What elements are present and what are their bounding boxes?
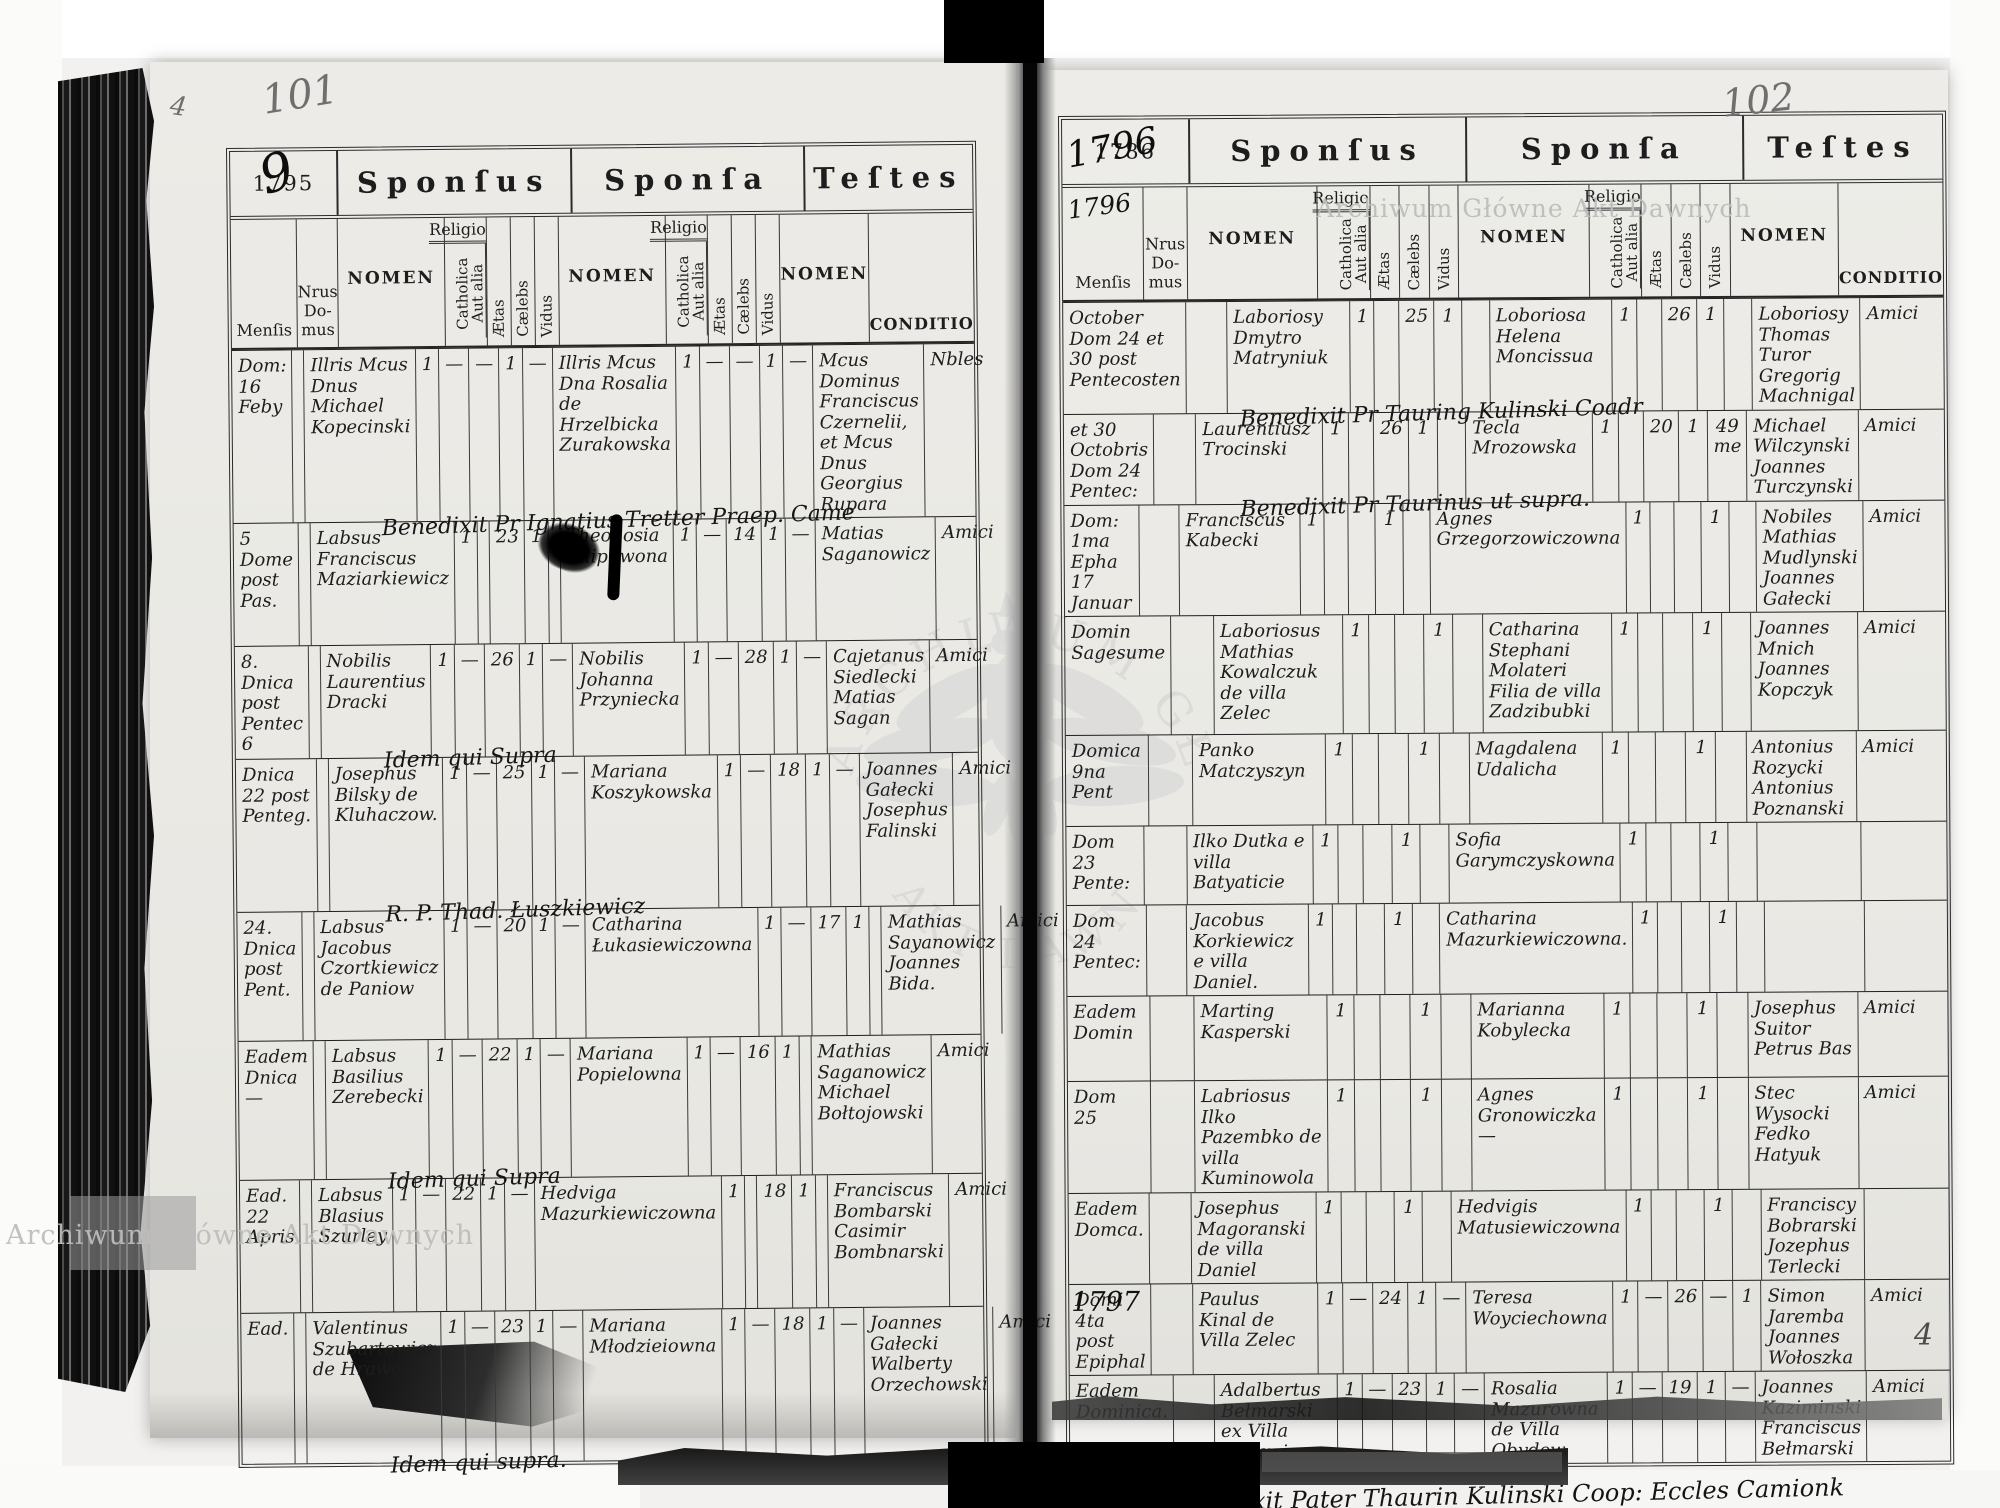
sponsus-nomen-cell: Paulus Kinal de Villa Zelec bbox=[1192, 1284, 1318, 1375]
row-mensis-cell: Dom: 16 Feby bbox=[232, 350, 293, 523]
sponsa-vidus-mark bbox=[1721, 613, 1751, 731]
sponsa-vidus-mark bbox=[1732, 1190, 1761, 1280]
sponsus-catholica-mark: 1 bbox=[1325, 735, 1352, 825]
column-aetas-label: Ætas bbox=[713, 298, 728, 336]
sponsus-vidus-mark: — bbox=[522, 348, 554, 520]
sponsus-nomen-cell: Laboriosy Dmytro Matryniuk bbox=[1226, 301, 1350, 412]
table-row: Ead.Valentinus Szubartowicz de Hrawa1—23… bbox=[241, 1306, 984, 1464]
sponsa-vidus-mark bbox=[1736, 902, 1764, 992]
sponsus-aetas-mark: 23 bbox=[494, 1311, 530, 1461]
row-mensis-cell: October Dom 24 et 30 post Pentecosten bbox=[1063, 302, 1186, 413]
sponsa-caelebs-mark: 1 bbox=[1692, 613, 1722, 731]
row-mensis-cell: Eadem Domca. bbox=[1069, 1193, 1149, 1284]
sponsus-aetas-mark: 25 bbox=[1398, 301, 1434, 412]
sponsa-catholica-mark: 1 bbox=[757, 908, 782, 1036]
sponsus-aut-alia-mark: — bbox=[454, 645, 485, 757]
row-nrus-cell bbox=[1150, 1284, 1192, 1374]
sponsus-caelebs-mark: 1 bbox=[498, 348, 523, 520]
sponsus-caelebs-mark: 1 bbox=[1384, 904, 1412, 994]
sponsa-aut-alia-mark bbox=[1628, 733, 1655, 823]
testes-nomen-cell: Loboriosy Thomas Turor Gregorig Machniga… bbox=[1751, 298, 1860, 409]
table-row: Domi 4ta post EpiphalPaulus Kinal de Vil… bbox=[1069, 1279, 1950, 1375]
sponsa-aetas-mark: 20 bbox=[1643, 411, 1678, 501]
testes-nomen-cell: Michael Wilczynski Joannes Turczynski bbox=[1746, 410, 1858, 501]
testes-nomen-cell: Mathias Sayanowicz Joannes Bida. bbox=[881, 906, 1001, 1035]
corner-mark-right: 4 bbox=[1914, 1318, 1933, 1353]
sponsa-aut-alia-mark: — bbox=[780, 908, 811, 1036]
sponsus-catholica-mark: 1 bbox=[453, 522, 478, 644]
sponsa-aetas-mark: 18 bbox=[756, 1176, 792, 1308]
sponsa-catholica-mark: 1 bbox=[1611, 614, 1638, 732]
sponsa-nomen-cell: Catharina Łukasiewiczowna bbox=[585, 908, 758, 1038]
sponsa-catholica-mark: 1 bbox=[717, 755, 742, 907]
section-header-sponsus: Sponſus bbox=[336, 149, 570, 215]
book-spine bbox=[1023, 58, 1037, 1508]
sponsa-aut-alia-mark bbox=[1636, 299, 1661, 410]
table-row: Dom: 1ma Epha 17 JanuarFranciscus Kabeck… bbox=[1064, 499, 1945, 616]
column-caelebs-label: Cælebs bbox=[1678, 232, 1693, 289]
sponsa-caelebs-mark: 1 bbox=[845, 907, 870, 1035]
sponsa-aetas-mark: 14 bbox=[726, 519, 762, 641]
scanner-background-left bbox=[0, 0, 62, 1508]
sponsus-vidus-mark: — bbox=[503, 1178, 534, 1310]
row-mensis-cell: 24. Dnica post Pent. bbox=[237, 912, 302, 1041]
sponsa-catholica-mark: 1 bbox=[673, 520, 698, 642]
sponsus-aetas-mark: 26 bbox=[484, 644, 520, 756]
sponsus-caelebs-mark: 1 bbox=[1410, 1080, 1441, 1191]
margin-year-note: 1797 bbox=[1071, 1287, 1140, 1318]
sponsus-nomen-cell: Valentinus Szubartowicz de Hrawa bbox=[305, 1312, 441, 1463]
sponsa-caelebs-mark: 1 bbox=[1696, 299, 1725, 410]
sponsus-aut-alia-mark bbox=[1368, 615, 1395, 733]
sponsus-catholica-mark: 1 bbox=[1299, 504, 1324, 615]
bottom-clip bbox=[948, 1442, 1260, 1508]
sponsus-vidus-mark: — bbox=[1435, 1283, 1466, 1373]
table-row: October Dom 24 et 30 post PentecostenLab… bbox=[1063, 297, 1944, 414]
sponsa-aut-alia-mark bbox=[1617, 411, 1643, 501]
sponsus-nomen-cell: Marting Kasperski bbox=[1193, 996, 1327, 1081]
sponsus-caelebs-mark: 1 bbox=[531, 910, 556, 1038]
sponsus-nomen-cell: Laboriosus Mathias Kowalczuk de villa Ze… bbox=[1213, 616, 1343, 735]
row-mensis-cell: Dom: 1ma Epha 17 Januar bbox=[1064, 505, 1139, 616]
sponsa-nomen-cell: Teresa Woyciechowna bbox=[1465, 1282, 1613, 1373]
marriage-register-table-right: 17861796SponſusSponſaTeſtesMenſis1796Nru… bbox=[1058, 111, 1954, 1471]
row-mensis-cell: Domica 9na Pent bbox=[1066, 736, 1148, 827]
sponsus-nomen-cell: Franciscus Kabecki bbox=[1179, 504, 1300, 615]
table-row: Dom 23 Pente:Ilko Dutka e villa Batyatic… bbox=[1066, 821, 1946, 905]
table-row: Domin SagesumeLaboriosus Mathias Kowalcz… bbox=[1065, 611, 1946, 735]
sponsus-vidus-mark: — bbox=[540, 1039, 571, 1177]
sponsus-nomen-cell: Panko Matczyszyn bbox=[1192, 735, 1326, 826]
sponsa-caelebs-mark: 1 bbox=[1687, 993, 1718, 1077]
row-mensis-cell: 8. Dnica post Pentec 6 bbox=[235, 646, 309, 759]
column-conditio: CONDITIO bbox=[1837, 183, 1943, 296]
sponsus-aetas-mark bbox=[1356, 904, 1384, 994]
register-book-scan: ARCHIWUM GŁÓWNE AKT DAWNYCH 17959Sponſus… bbox=[0, 0, 2000, 1508]
column-religio: Religio bbox=[429, 218, 486, 245]
year-cell: 17861796 bbox=[1062, 119, 1188, 184]
year-handwritten-below: 1796 bbox=[1066, 188, 1133, 225]
sponsa-aetas-mark bbox=[1675, 1190, 1704, 1280]
sponsus-caelebs-mark: 1 bbox=[480, 1179, 505, 1311]
sponsus-catholica-mark: 1 bbox=[1349, 301, 1374, 412]
sponsus-aetas-mark bbox=[1365, 1192, 1394, 1282]
testes-nomen-cell: Franciscy Bobrarski Jozephus Terlecki bbox=[1760, 1189, 1864, 1280]
column-aetas: Ætas bbox=[486, 217, 511, 345]
register-header-band: 17861796SponſusSponſaTeſtes bbox=[1062, 115, 1942, 188]
column-religio: Religio bbox=[650, 215, 707, 242]
sponsus-vidus-mark bbox=[1422, 1192, 1451, 1282]
sponsus-catholica-mark: 1 bbox=[440, 1312, 465, 1462]
sponsa-nomen-cell: Agnes Grzegorzowiczowna bbox=[1429, 502, 1625, 614]
column-vidus-label: Vidus bbox=[761, 292, 776, 334]
year-overlay-handwritten: 1796 bbox=[1063, 120, 1161, 177]
sponsus-vidus-mark bbox=[1436, 412, 1465, 502]
column-nrus-domus: Nrus Do-mus bbox=[1143, 187, 1187, 299]
conditio-cell bbox=[1864, 901, 1947, 992]
sponsa-vidus-mark: 1 bbox=[1732, 1281, 1761, 1371]
sponsus-vidus-mark bbox=[1402, 503, 1430, 614]
sponsa-vidus-mark: — bbox=[782, 345, 814, 517]
column-testes-nomen: NOMEN bbox=[779, 214, 869, 343]
sponsa-nomen-cell: Catharina Mazurkiewiczowna. bbox=[1439, 903, 1633, 994]
sponsus-caelebs-mark: 1 bbox=[1410, 995, 1441, 1079]
sponsus-vidus-mark: — bbox=[542, 644, 573, 756]
sponsa-nomen-cell: Nobilis Johanna Przyniecka bbox=[572, 643, 685, 756]
sponsus-aetas-mark: 23 bbox=[489, 521, 525, 643]
sponsus-catholica-mark: 1 bbox=[428, 1040, 453, 1178]
sponsa-vidus-mark bbox=[1717, 993, 1748, 1077]
row-mensis-cell: Dnica 22 post Penteg. bbox=[236, 759, 317, 912]
sponsus-catholica-mark: 1 bbox=[1315, 1192, 1341, 1282]
sponsa-vidus-mark: — bbox=[796, 641, 827, 753]
year-cell: 17959 bbox=[230, 151, 337, 216]
conditio-cell: Amici bbox=[1862, 500, 1945, 611]
sponsus-aetas-mark: — bbox=[468, 348, 500, 520]
sponsus-catholica-mark: 1 bbox=[1317, 1283, 1343, 1373]
sponsus-caelebs-mark: 1 bbox=[530, 757, 555, 909]
sponsa-aetas-mark bbox=[1656, 994, 1687, 1078]
sponsus-caelebs-mark: 1 bbox=[1391, 825, 1420, 903]
row-mensis-cell: Eadem Domin bbox=[1067, 997, 1149, 1081]
column-caelebs: Cælebs bbox=[510, 217, 535, 345]
sponsus-aut-alia-mark bbox=[1323, 504, 1348, 615]
sponsa-aetas-mark: 28 bbox=[738, 642, 774, 754]
sponsus-aetas-mark bbox=[1347, 504, 1375, 615]
row-nrus-cell bbox=[1148, 1193, 1190, 1283]
sponsa-aut-alia-mark bbox=[1656, 903, 1681, 993]
section-header-testes: Teſtes bbox=[1742, 115, 1943, 180]
bottom-dark-edge-secondary bbox=[1262, 1452, 1562, 1472]
column-vidus-2: Vidus bbox=[755, 215, 780, 343]
conditio-cell: Amici bbox=[1857, 992, 1948, 1077]
sponsus-aetas-mark bbox=[1378, 734, 1409, 824]
sponsus-caelebs-mark: 1 bbox=[529, 1311, 554, 1461]
sponsa-aut-alia-mark: — bbox=[744, 1309, 775, 1459]
sponsus-aut-alia-mark: — bbox=[451, 1040, 482, 1178]
sponsa-aut-alia-mark: — bbox=[710, 1037, 741, 1175]
sponsa-aut-alia-mark bbox=[1650, 1190, 1676, 1280]
sponsa-nomen-cell: Hedvigis Matusiewiczowna bbox=[1450, 1191, 1625, 1282]
column-conditio: CONDITIO bbox=[868, 213, 974, 342]
sponsa-aetas-mark bbox=[1673, 502, 1701, 613]
sponsa-nomen-cell: Illris Mcus Dna Rosalia de Hrzelbicka Zu… bbox=[552, 347, 677, 520]
table-row: Dom 24 Pentec:Jacobus Korkiewicz e villa… bbox=[1067, 900, 1948, 996]
column-aetas-label: Ætas bbox=[1377, 252, 1392, 290]
sponsa-aut-alia-mark: — bbox=[740, 755, 771, 907]
sponsus-vidus-mark bbox=[1440, 1080, 1471, 1191]
sponsus-vidus-mark: — bbox=[554, 757, 585, 909]
testes-nomen-cell bbox=[1756, 822, 1861, 901]
sponsus-vidus-mark bbox=[1440, 995, 1471, 1079]
sponsa-nomen-cell: Marianna Kobylecka bbox=[1470, 994, 1604, 1079]
sponsus-nomen-cell: Jacobus Korkiewicz e villa Daniel. bbox=[1186, 905, 1308, 996]
testes-nomen-cell: Stec Wysocki Fedko Hatyuk bbox=[1747, 1078, 1858, 1189]
testes-nomen-cell: Mathias Saganowicz Michael Bołtojowski bbox=[810, 1035, 932, 1174]
conditio-cell: Amici bbox=[935, 517, 1000, 640]
sponsus-vidus-mark bbox=[1411, 904, 1439, 994]
sponsus-aetas-mark: 25 bbox=[496, 757, 532, 909]
book-page-edges bbox=[58, 68, 154, 1392]
sponsus-catholica-mark: 1 bbox=[1312, 826, 1338, 904]
table-row: 24. Dnica post Pent.Labsus Jacobus Czort… bbox=[237, 905, 980, 1041]
row-mensis-cell: et 30 Octobris Dom 24 Pentec: bbox=[1064, 414, 1154, 505]
sponsa-catholica-mark: 1 bbox=[721, 1309, 746, 1459]
sponsa-caelebs-mark: 1 bbox=[1701, 502, 1729, 613]
sponsa-aetas-mark: — bbox=[728, 346, 760, 518]
table-row: Domica 9na PentPanko Matczyszyn11Magdale… bbox=[1066, 730, 1947, 826]
religio-column-group: ReligioCatholicaAut alia bbox=[664, 215, 708, 343]
section-header-testes: Teſtes bbox=[803, 145, 973, 211]
table-row: Eadem Domca.Josephus Magoranski de villa… bbox=[1069, 1188, 1950, 1284]
row-nrus-cell bbox=[1170, 616, 1214, 734]
register-header-band: 17959SponſusSponſaTeſtes bbox=[230, 145, 973, 220]
testes-nomen-cell: Simon Jaremba Joannes Wołoszka bbox=[1761, 1280, 1865, 1371]
row-nrus-cell bbox=[1147, 735, 1192, 825]
sponsus-catholica-mark: 1 bbox=[443, 911, 468, 1039]
sponsa-caelebs-mark: 1 bbox=[1708, 902, 1736, 992]
top-clip bbox=[944, 0, 1044, 63]
sponsus-caelebs-mark: 1 bbox=[1408, 734, 1439, 824]
sponsus-caelebs-mark: 1 bbox=[1423, 615, 1453, 733]
sponsa-nomen-cell: Hedviga Mazurkiewiczowna bbox=[533, 1176, 722, 1310]
table-row: 8. Dnica post Pentec 6Nobilis Laurentius… bbox=[235, 639, 978, 759]
row-mensis-cell: Dom 24 Pentec: bbox=[1067, 906, 1146, 997]
sponsus-nomen-cell: Labriosus Ilko Pazembko de villa Kuminow… bbox=[1194, 1081, 1328, 1192]
row-nrus-cell bbox=[1144, 827, 1187, 905]
sponsus-aut-alia-mark bbox=[1340, 1192, 1366, 1282]
sponsus-catholica-mark: 1 bbox=[430, 645, 455, 757]
scanner-background-right bbox=[1950, 0, 2000, 1508]
sponsus-catholica-mark: 1 bbox=[1342, 615, 1369, 733]
sponsa-caelebs-mark: 1 bbox=[761, 519, 786, 641]
archive-watermark-bottom-left: Archiwum Główne Akt Dawnych bbox=[6, 1220, 474, 1251]
sponsa-vidus-mark bbox=[1728, 501, 1756, 612]
sponsa-nomen-cell: Sofia Garymczyskowna bbox=[1448, 824, 1620, 903]
testes-nomen-cell: Joannes Gałecki Josephus Falinski bbox=[858, 753, 953, 906]
section-header-sponsus: Sponſus bbox=[1188, 118, 1465, 184]
row-nrus-cell bbox=[1185, 302, 1227, 413]
sponsa-catholica-mark: 1 bbox=[1603, 994, 1630, 1078]
sponsa-catholica-mark: 1 bbox=[1602, 733, 1629, 823]
sponsa-vidus-mark bbox=[1715, 732, 1746, 822]
sponsa-aut-alia-mark: — bbox=[696, 519, 727, 641]
sponsa-nomen-cell: Mariana Koszykowska bbox=[584, 755, 718, 908]
testes-nomen-cell: Joannes Gałecki Walberty Orzechowski bbox=[863, 1307, 994, 1458]
sponsus-aetas-mark bbox=[1394, 615, 1424, 733]
sponsus-aetas-mark bbox=[1363, 825, 1392, 903]
column-vidus-label: Vidus bbox=[1708, 246, 1723, 288]
sponsus-aut-alia-mark: — bbox=[466, 911, 497, 1039]
testes-nomen-cell: Franciscus Bombarski Casimir Bombnarski bbox=[827, 1174, 950, 1307]
sponsa-aetas-mark bbox=[1657, 1079, 1688, 1190]
sponsa-caelebs-mark: 1 bbox=[775, 1037, 800, 1175]
row-mensis-cell: Dom 25 bbox=[1068, 1082, 1150, 1193]
sponsus-caelebs-mark: 1 bbox=[1375, 504, 1403, 615]
sponsus-aut-alia-mark bbox=[1332, 905, 1357, 995]
conditio-cell: Amici bbox=[1857, 1077, 1948, 1188]
column-vidus-label: Vidus bbox=[1436, 247, 1451, 289]
sponsa-aut-alia-mark bbox=[1630, 994, 1657, 1078]
sponsa-aut-alia-mark bbox=[1637, 614, 1664, 732]
sponsa-catholica-mark: 1 bbox=[1612, 300, 1637, 411]
conditio-cell: Amici bbox=[948, 1174, 1013, 1307]
row-mensis-cell: Ead. bbox=[241, 1314, 295, 1464]
sponsa-caelebs-mark: 1 bbox=[1687, 1078, 1718, 1189]
sponsa-nomen-cell: Mariana Popielowna bbox=[570, 1038, 688, 1177]
sponsus-vidus-mark: — bbox=[555, 910, 586, 1038]
column-caelebs-label: Cælebs bbox=[515, 281, 531, 338]
testes-nomen-cell: Cajetanus Siedlecki Matias Sagan bbox=[826, 640, 930, 753]
sponsa-aut-alia-mark bbox=[1630, 1079, 1657, 1190]
column-aetas-2: Ætas bbox=[707, 215, 732, 343]
table-row: Dnica 22 post Penteg.Josephus Bilsky de … bbox=[236, 752, 979, 912]
sponsus-vidus-mark bbox=[1461, 300, 1490, 411]
conditio-cell: Amici bbox=[931, 1035, 996, 1174]
sponsus-aetas-mark: 20 bbox=[496, 910, 532, 1038]
sponsus-caelebs-mark: 1 bbox=[1394, 1192, 1423, 1282]
religio-column-group: ReligioCatholicaAut alia bbox=[443, 218, 487, 346]
conditio-cell: Nbles bbox=[923, 344, 990, 517]
sponsus-nomen-cell: Labsus Basilius Zerebecki bbox=[325, 1040, 430, 1179]
sponsa-catholica-mark: 1 bbox=[1620, 824, 1646, 902]
year-overlay-handwritten: 9 bbox=[252, 140, 301, 207]
testes-nomen-cell: Antonius Rozycki Antonius Poznanski bbox=[1745, 731, 1856, 822]
sponsus-catholica-mark: 1 bbox=[1327, 1081, 1354, 1192]
table-row: Dom: 16 FebyIllris Mcus Dnus Michael Kop… bbox=[232, 343, 976, 523]
archive-watermark-top-right: Archiwum Główne Akt Dawnych bbox=[1316, 194, 1752, 223]
marriage-register-table-left: 17959SponſusSponſaTeſtesMenſisNrus Do-mu… bbox=[226, 141, 989, 1468]
conditio-cell: Amici bbox=[1864, 1280, 1950, 1371]
column-aut-alia: Aut alia bbox=[470, 244, 487, 338]
sponsa-caelebs-mark: 1 bbox=[1685, 732, 1716, 822]
sponsa-catholica-mark: 1 bbox=[1604, 1079, 1631, 1190]
table-row: Dom 25Labriosus Ilko Pazembko de villa K… bbox=[1068, 1076, 1949, 1193]
sponsa-aut-alia-mark bbox=[1649, 502, 1674, 613]
sponsa-caelebs-mark: 1 bbox=[773, 642, 798, 754]
testes-nomen-cell: Joannes Mnich Joannes Kopczyk bbox=[1750, 612, 1858, 731]
conditio-cell bbox=[1860, 822, 1946, 901]
column-caelebs-2: Cælebs bbox=[731, 215, 756, 343]
row-mensis-cell: Dom 23 Pente: bbox=[1066, 827, 1144, 905]
sponsa-aut-alia-mark: — bbox=[698, 346, 730, 518]
sponsa-catholica-mark: 1 bbox=[1612, 1282, 1638, 1372]
table-row: Eadem Dnica —Labsus Basilius Zerebecki1—… bbox=[239, 1034, 982, 1180]
row-nrus-cell bbox=[1153, 414, 1196, 504]
row-nrus-cell bbox=[1149, 997, 1194, 1081]
section-header-sponsa: Sponſa bbox=[570, 146, 804, 212]
sponsus-aut-alia-mark: — bbox=[438, 349, 470, 521]
column-vidus: Vidus bbox=[534, 217, 559, 345]
sponsa-catholica-mark: 1 bbox=[675, 346, 700, 518]
row-nrus-cell bbox=[1145, 906, 1186, 996]
sponsa-nomen-cell: Loboriosa Helena Moncissua bbox=[1489, 300, 1613, 411]
sponsa-aut-alia-mark: — bbox=[708, 642, 739, 754]
column-mensis: Menſis bbox=[231, 219, 297, 348]
sponsa-catholica-mark: 1 bbox=[684, 643, 709, 755]
sponsa-aetas-mark: 26 bbox=[1667, 1281, 1702, 1371]
sponsus-vidus-mark bbox=[1420, 825, 1449, 903]
sponsus-nomen-cell: Labsus Jacobus Czortkiewicz de Paniow bbox=[313, 911, 444, 1040]
sponsa-caelebs-mark: 1 bbox=[758, 346, 783, 518]
testes-nomen-cell: Nobiles Mathias Mudlynski Joannes Gałeck… bbox=[1755, 501, 1863, 612]
column-aut-alia: Aut alia bbox=[1353, 212, 1369, 290]
sponsus-aut-alia-mark: — bbox=[464, 1312, 495, 1462]
conditio-cell: Amici bbox=[952, 753, 1017, 906]
sponsus-aut-alia-mark bbox=[1351, 734, 1378, 824]
sponsus-nomen-cell: Josephus Bilsky de Kluhaczow. bbox=[328, 758, 444, 911]
sponsa-aetas-mark bbox=[1655, 732, 1686, 822]
sponsa-aetas-mark bbox=[1681, 902, 1709, 992]
sponsus-aetas-mark: 24 bbox=[1372, 1283, 1407, 1373]
conditio-cell: Amici bbox=[1860, 298, 1944, 409]
sponsus-aetas-mark bbox=[1380, 995, 1411, 1079]
testes-nomen-cell bbox=[1764, 901, 1865, 992]
sponsa-caelebs-mark: 1 bbox=[1703, 1190, 1732, 1280]
sponsa-vidus-mark bbox=[1724, 299, 1753, 410]
sponsa-aetas-mark: 18 bbox=[774, 1309, 810, 1459]
sponsus-aut-alia-mark bbox=[1353, 995, 1380, 1079]
sponsus-caelebs-mark: 1 bbox=[519, 644, 544, 756]
sponsa-vidus-mark bbox=[1728, 823, 1757, 901]
sponsus-vidus-mark bbox=[1438, 734, 1469, 824]
row-mensis-cell: Domin Sagesume bbox=[1065, 617, 1171, 736]
sponsus-aut-alia-mark bbox=[1337, 826, 1363, 904]
sponsa-nomen-cell: Catharina Stephani Molateri Filia de vil… bbox=[1482, 614, 1612, 733]
conditio-cell: Amici bbox=[929, 640, 994, 753]
sponsus-aetas-mark: 22 bbox=[481, 1039, 517, 1177]
column-aetas-label: Ætas bbox=[1649, 251, 1664, 289]
column-aetas-label: Ætas bbox=[492, 300, 507, 338]
conditio-cell bbox=[1864, 1189, 1950, 1280]
testes-nomen-cell: Josephus Suitor Petrus Bas bbox=[1747, 993, 1858, 1078]
sponsa-catholica-mark: 1 bbox=[1632, 903, 1657, 993]
sponsa-vidus-mark: — bbox=[784, 518, 815, 640]
row-mensis-cell: Eadem Dnica — bbox=[239, 1041, 314, 1180]
sponsa-caelebs-mark: 1 bbox=[1678, 411, 1707, 501]
sponsus-caelebs-mark: 1 bbox=[516, 1039, 541, 1177]
testes-nomen-cell: Matias Saganowicz bbox=[814, 517, 936, 640]
sponsa-catholica-mark: 1 bbox=[1592, 411, 1618, 501]
sponsa-catholica-mark: 1 bbox=[1625, 502, 1650, 613]
sponsus-caelebs-mark: 1 bbox=[1433, 301, 1462, 412]
sponsus-aut-alia-mark: — bbox=[466, 758, 497, 910]
sponsa-nomen-cell: Magdalena Udalicha bbox=[1469, 733, 1603, 824]
sponsa-vidus-mark: 49 me bbox=[1706, 410, 1746, 500]
sponsa-vidus-mark bbox=[1717, 1078, 1748, 1189]
sponsus-catholica-mark: 1 bbox=[1308, 905, 1333, 995]
table-row: 5 Dome post Pas.Labsus Franciscus Maziar… bbox=[234, 516, 977, 646]
